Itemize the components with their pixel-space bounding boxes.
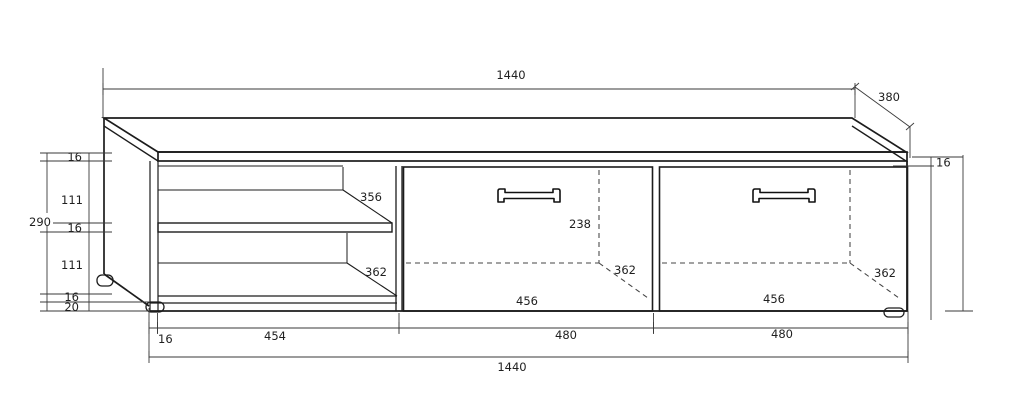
label-left-seg-3: 111 [61,258,83,272]
door-left-handle [498,189,560,202]
label-bottom-seg-2: 480 [555,328,577,342]
label-right-thickness: 16 [936,156,951,170]
dim-overall-width-bottom: 1440 [149,351,908,374]
door-left [404,167,653,311]
dim-depth: 380 [851,83,914,158]
label-depth: 380 [878,90,900,104]
label-height-total: 290 [29,215,51,229]
dim-bottom-segments: 16 454 480 480 [149,308,908,358]
label-left-seg-5: 20 [64,300,79,314]
door-right-handle [753,189,815,202]
technical-drawing-canvas: 1440 380 16 290 16 111 16 111 16 20 [0,0,1024,415]
dim-left-heights: 290 16 111 16 111 16 20 [27,150,150,314]
back-left-foot [97,275,113,286]
label-door1-inner-depth: 362 [614,263,636,277]
interior-depth-labels: 356 362 238 362 456 362 456 [360,190,896,308]
label-left-seg-0: 16 [67,150,82,164]
label-shelf-depth: 356 [360,190,382,204]
label-bottom-seg-0: 16 [158,332,173,346]
shelf [158,223,392,232]
carcass-bottom [150,161,908,311]
label-left-seg-1: 111 [61,193,83,207]
label-door1-inner-height: 238 [569,217,591,231]
label-door1-inner-width: 456 [516,294,538,308]
dim-top-thickness-right: 16 [893,155,973,320]
label-left-seg-2: 16 [67,221,82,235]
front-right-foot [884,308,904,317]
label-top-width: 1440 [496,68,525,82]
top-panel [104,118,907,161]
tv-stand-dimension-drawing: 1440 380 16 290 16 111 16 111 16 20 [0,0,1024,415]
divider-panel [396,166,402,311]
door-right [660,167,908,311]
open-shelf-section [158,166,397,296]
label-open-bottom-depth: 362 [365,265,387,279]
label-door2-inner-width: 456 [763,292,785,306]
label-bottom-width: 1440 [497,360,526,374]
label-door2-inner-depth: 362 [874,266,896,280]
label-bottom-seg-1: 454 [264,329,286,343]
dim-overall-width-top: 1440 [103,68,855,118]
label-bottom-seg-3: 480 [771,327,793,341]
